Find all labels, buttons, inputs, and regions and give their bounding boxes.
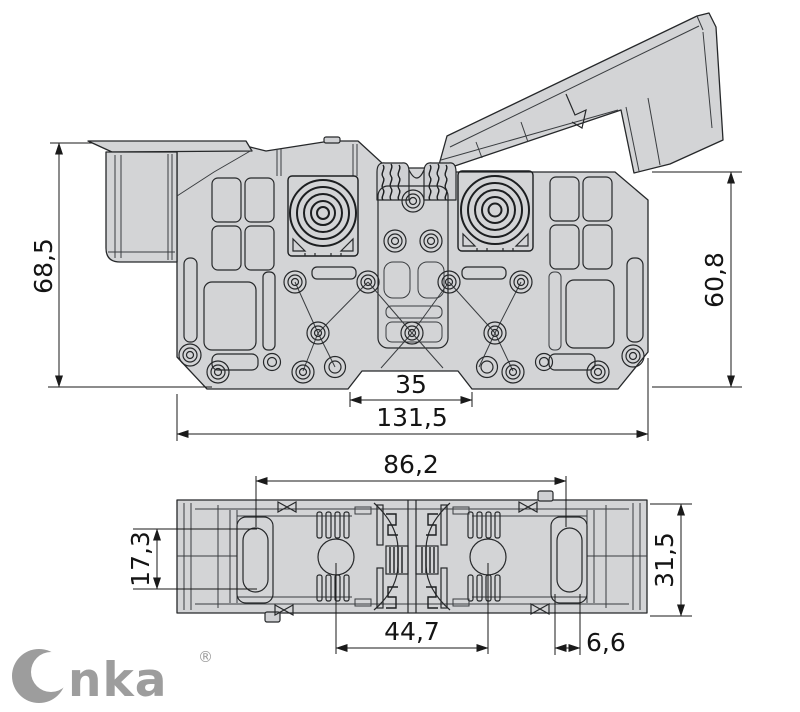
onka-logo: nka ® [12,648,213,708]
dim-right-height: 60,8 [652,172,742,387]
side-view: 68,5 60,8 35 131,5 [29,13,742,441]
dim-overall-width-label: 131,5 [376,403,448,432]
dim-depth-label: 31,5 [650,532,679,588]
logo-text: nka [68,653,167,708]
dim-depth: 31,5 [650,504,692,616]
top-view: 86,2 17,3 31,5 44,7 6,6 [126,450,692,657]
logo-o-crescent [31,652,71,692]
logo-registered-mark: ® [198,648,213,666]
dim-overall-height-label: 68,5 [29,238,58,294]
dim-slot-width-label: 6,6 [586,628,626,657]
left-lip [88,141,252,152]
dim-notch-width: 35 [350,370,472,407]
dim-right-height-label: 60,8 [700,252,729,308]
technical-drawing: 68,5 60,8 35 131,5 [0,0,800,712]
left-block [106,152,177,262]
dim-slot-span-label: 86,2 [383,450,439,479]
terminal-body [88,137,648,389]
dim-slot-length-label: 17,3 [126,531,155,587]
dim-inner-span-label: 44,7 [384,617,440,646]
cover-open [437,13,723,173]
dim-notch-width-label: 35 [395,370,427,399]
latch-tab-top [538,491,553,501]
